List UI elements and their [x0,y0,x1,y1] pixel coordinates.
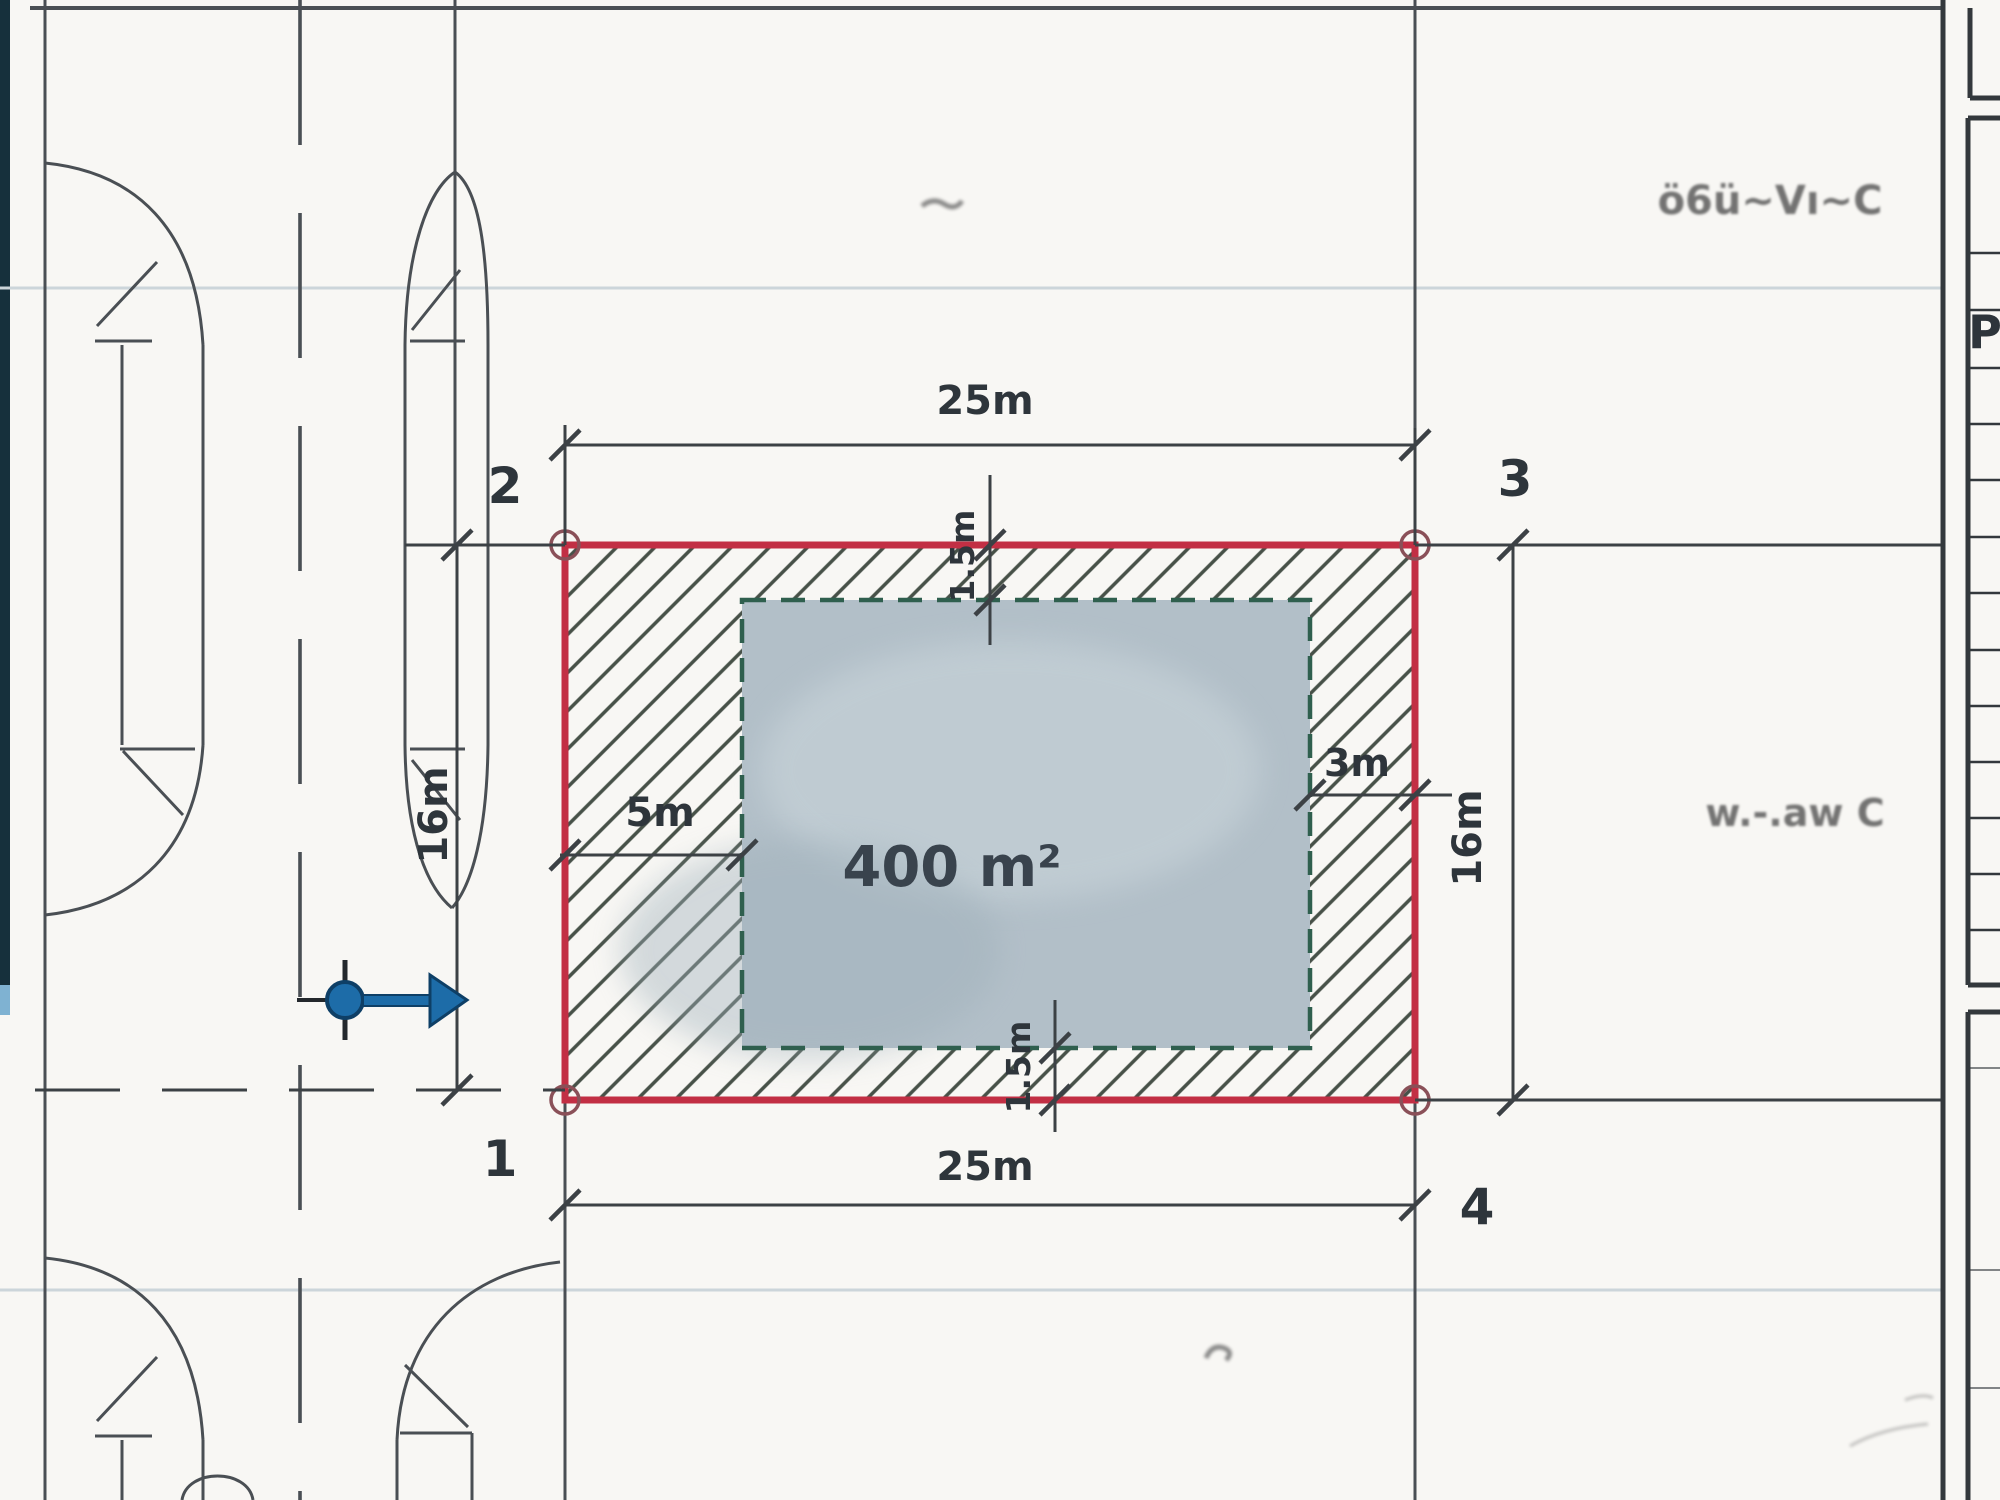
corner-label-2: 2 [488,457,523,515]
entrance-arrow-icon [297,960,467,1040]
dim-label-bottom-25m: 25m [936,1144,1033,1190]
handwritten-annotation-top-right: ö6ü~Vı~C [1658,178,1883,224]
dim-label-right-16m: 16m [1445,789,1491,886]
site-plan-drawing: ö6ü~Vı~C w.-.aw C 400 m² [0,0,2000,1500]
corner-label-1: 1 [483,1130,518,1188]
corner-label-3: 3 [1498,450,1533,508]
scanned-site-plan-page: ö6ü~Vı~C w.-.aw C 400 m² [0,0,2000,1500]
titleblock [1943,0,2000,1500]
handwritten-annotation-mid-right: w.-.aw C [1705,791,1884,835]
dim-label-top-25m: 25m [936,378,1033,424]
dim-label-setback-5m: 5m [625,790,695,836]
parking-islands [45,163,560,1500]
corner-label-4: 4 [1460,1178,1495,1236]
dim-label-left-16m: 16m [411,766,457,863]
titleblock-letter: P [1968,305,2000,359]
scan-edge-band [0,0,10,1015]
dim-label-setback-bottom-1-5m: 1.5m [999,1021,1038,1114]
dim-label-setback-3m: 3m [1324,741,1390,785]
dim-label-setback-top-1-5m: 1.5m [943,510,982,603]
building-area-label: 400 m² [842,835,1061,900]
